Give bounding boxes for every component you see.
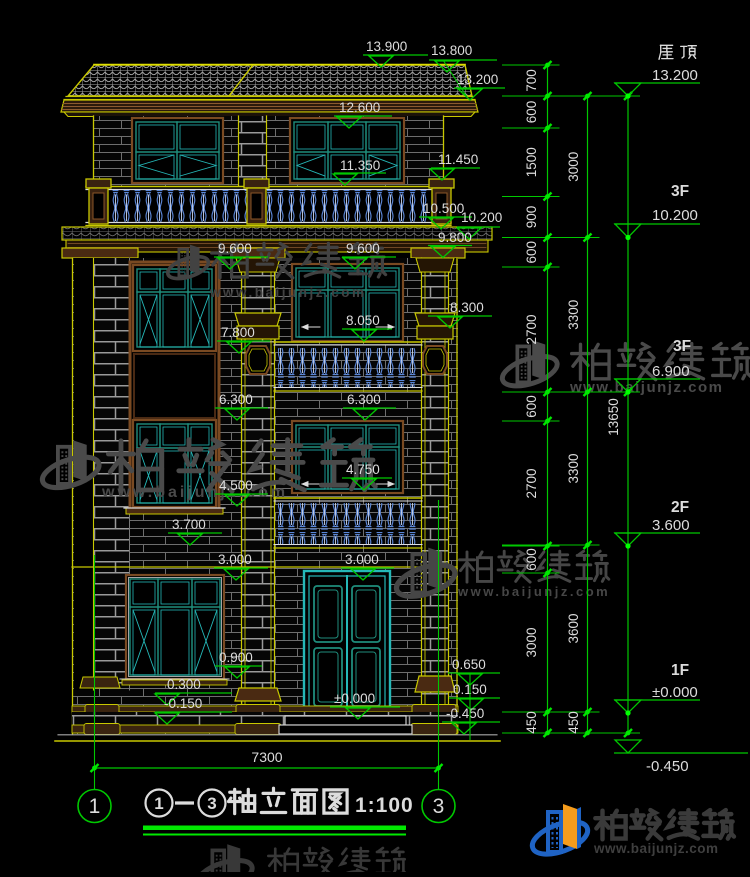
svg-text:2700: 2700 (524, 468, 539, 498)
svg-text:10.200: 10.200 (461, 210, 502, 225)
svg-text:600: 600 (524, 241, 539, 264)
svg-text:7300: 7300 (251, 749, 282, 765)
svg-text:13.200: 13.200 (457, 72, 498, 87)
svg-text:450: 450 (524, 711, 539, 734)
svg-text:3300: 3300 (566, 453, 581, 483)
svg-text:-0.450: -0.450 (646, 758, 689, 775)
svg-text:3.000: 3.000 (218, 552, 252, 567)
svg-text:6.900: 6.900 (652, 363, 690, 380)
svg-text:600: 600 (524, 101, 539, 124)
svg-text:600: 600 (524, 548, 539, 571)
svg-text:3000: 3000 (566, 152, 581, 182)
svg-text:10.500: 10.500 (423, 201, 464, 216)
svg-text:1F: 1F (671, 662, 689, 679)
svg-text:1:100: 1:100 (355, 794, 414, 817)
svg-text:13650: 13650 (606, 398, 621, 436)
svg-text:3.600: 3.600 (652, 517, 690, 534)
svg-text:2F: 2F (671, 499, 689, 516)
svg-text:1: 1 (154, 794, 163, 813)
svg-text:-0.450: -0.450 (446, 706, 484, 721)
svg-text:900: 900 (524, 206, 539, 229)
svg-text:600: 600 (524, 395, 539, 418)
svg-text:12.600: 12.600 (339, 100, 380, 115)
svg-text:7.800: 7.800 (221, 325, 255, 340)
svg-text:0.300: 0.300 (167, 677, 201, 692)
svg-text:2700: 2700 (524, 314, 539, 344)
svg-text:www.baijunjz.com: www.baijunjz.com (209, 285, 367, 300)
svg-text:3: 3 (433, 795, 445, 818)
svg-text:450: 450 (566, 711, 581, 734)
svg-text:6.300: 6.300 (219, 392, 253, 407)
svg-text:9.800: 9.800 (438, 230, 472, 245)
svg-text:-0.150: -0.150 (164, 696, 202, 711)
svg-text:9.600: 9.600 (346, 241, 380, 256)
svg-text:8.050: 8.050 (346, 313, 380, 328)
svg-text:www.baijunjz.com: www.baijunjz.com (101, 484, 288, 501)
svg-text:±0.000: ±0.000 (652, 684, 698, 701)
svg-text:10.200: 10.200 (652, 207, 698, 224)
svg-text:1500: 1500 (524, 147, 539, 177)
svg-text:3300: 3300 (566, 300, 581, 330)
svg-text:3F: 3F (671, 183, 689, 200)
svg-text:3: 3 (207, 794, 216, 813)
svg-text:8.300: 8.300 (450, 300, 484, 315)
svg-text:13.900: 13.900 (366, 39, 407, 54)
svg-text:www.baijunjz.com: www.baijunjz.com (593, 841, 719, 856)
svg-text:www.baijunjz.com: www.baijunjz.com (569, 379, 723, 396)
svg-text:6.300: 6.300 (347, 392, 381, 407)
svg-text:±0.000: ±0.000 (334, 691, 375, 706)
svg-text:700: 700 (524, 69, 539, 92)
svg-text:13.800: 13.800 (431, 43, 472, 58)
svg-text:4.500: 4.500 (219, 478, 253, 493)
svg-text:4.750: 4.750 (346, 462, 380, 477)
svg-text:3.700: 3.700 (172, 517, 206, 532)
svg-text:11.350: 11.350 (340, 158, 380, 173)
svg-text:0.650: 0.650 (452, 657, 486, 672)
svg-text:11.450: 11.450 (438, 152, 478, 167)
svg-text:13.200: 13.200 (652, 67, 698, 84)
svg-text:0.900: 0.900 (219, 650, 253, 665)
svg-text:3.000: 3.000 (345, 552, 379, 567)
svg-text:1: 1 (89, 795, 101, 818)
svg-text:3600: 3600 (566, 613, 581, 643)
svg-text:3000: 3000 (524, 627, 539, 657)
svg-text:3F: 3F (673, 338, 691, 355)
svg-text:9.600: 9.600 (218, 241, 252, 256)
